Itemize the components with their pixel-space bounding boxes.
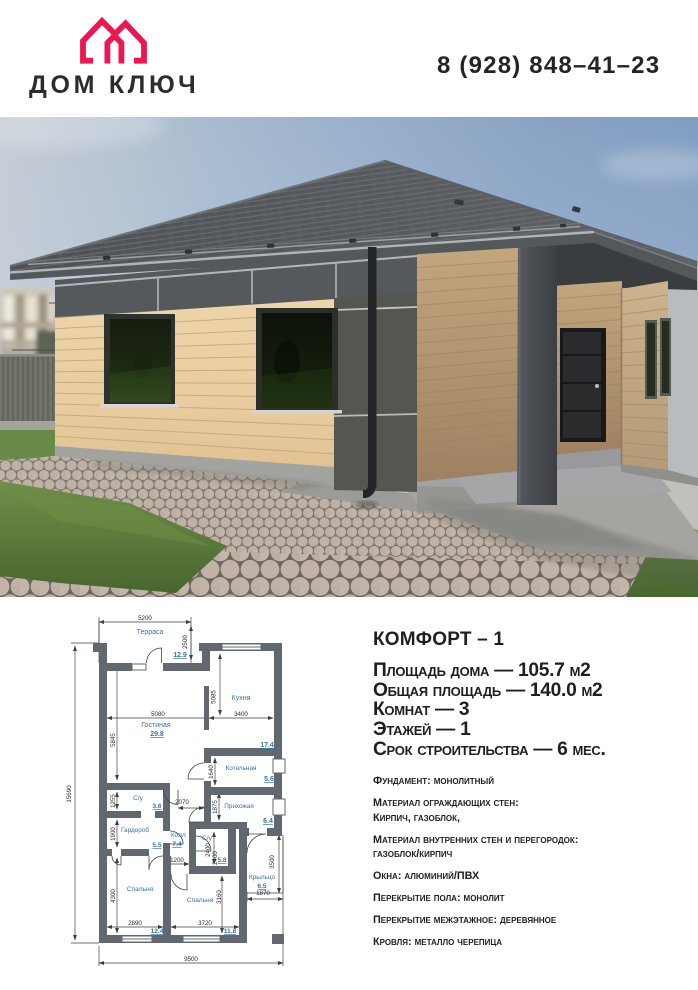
- svg-text:3500: 3500: [269, 855, 276, 869]
- svg-text:7.4: 7.4: [172, 841, 181, 848]
- svg-text:1640: 1640: [208, 765, 215, 779]
- svg-text:3400: 3400: [234, 711, 248, 718]
- svg-text:Спальня: Спальня: [127, 886, 154, 893]
- svg-text:2890: 2890: [128, 920, 142, 927]
- svg-text:Холл: Холл: [170, 832, 186, 839]
- svg-text:15690: 15690: [66, 785, 73, 803]
- svg-text:6.4: 6.4: [263, 818, 273, 825]
- svg-text:5080: 5080: [151, 711, 165, 718]
- svg-text:2500: 2500: [182, 635, 189, 649]
- svg-text:5085: 5085: [211, 690, 218, 704]
- svg-text:Спальня: Спальня: [187, 897, 214, 904]
- svg-text:11.8: 11.8: [224, 928, 237, 935]
- svg-text:17.4: 17.4: [260, 742, 274, 749]
- svg-text:3160: 3160: [216, 890, 223, 904]
- svg-text:5.5: 5.5: [152, 842, 161, 849]
- svg-text:3.6: 3.6: [152, 803, 161, 810]
- svg-text:Гардероб: Гардероб: [121, 826, 149, 834]
- svg-text:Гостиная: Гостиная: [141, 722, 171, 729]
- svg-text:1875: 1875: [212, 800, 219, 814]
- svg-text:Котельная: Котельная: [226, 765, 257, 772]
- svg-text:12.9: 12.9: [173, 652, 187, 659]
- svg-text:1200: 1200: [170, 857, 184, 864]
- svg-text:Прихожая: Прихожая: [224, 803, 254, 810]
- svg-text:9500: 9500: [184, 956, 198, 963]
- svg-text:6.5: 6.5: [257, 883, 266, 890]
- svg-text:2400: 2400: [212, 851, 219, 865]
- svg-text:4300: 4300: [110, 889, 117, 903]
- svg-text:1870: 1870: [256, 890, 270, 897]
- svg-text:3720: 3720: [198, 920, 212, 927]
- svg-text:2070: 2070: [175, 799, 189, 806]
- svg-text:29.8: 29.8: [150, 731, 164, 738]
- svg-text:С/у: С/у: [133, 795, 144, 802]
- svg-text:1900: 1900: [110, 827, 117, 841]
- svg-text:Кухня: Кухня: [232, 695, 251, 702]
- svg-text:12.4: 12.4: [151, 928, 164, 935]
- svg-text:С/у: С/у: [202, 835, 213, 842]
- svg-text:5200: 5200: [138, 615, 152, 622]
- svg-text:2400: 2400: [205, 843, 212, 857]
- svg-text:1255: 1255: [110, 794, 117, 808]
- svg-text:5845: 5845: [110, 733, 117, 747]
- svg-text:Крыльцо: Крыльцо: [249, 874, 276, 881]
- svg-text:Терраса: Терраса: [137, 629, 164, 636]
- svg-text:5.6: 5.6: [264, 776, 274, 783]
